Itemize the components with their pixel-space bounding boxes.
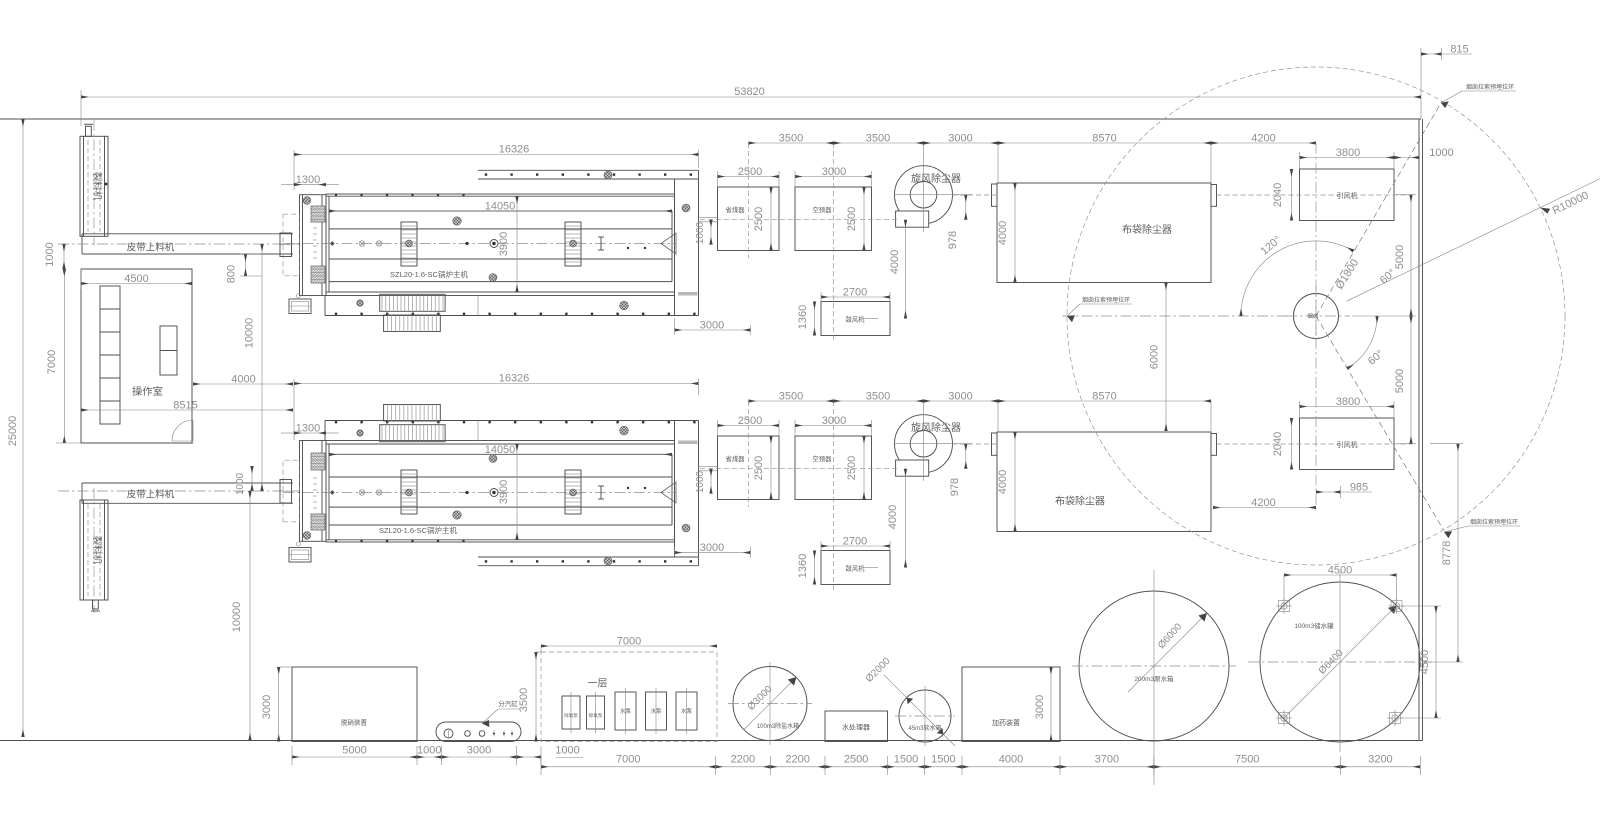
svg-text:4000: 4000 xyxy=(997,470,1009,494)
svg-text:SZL20-1.6-SC锅炉主机: SZL20-1.6-SC锅炉主机 xyxy=(379,525,457,535)
svg-text:7000: 7000 xyxy=(616,754,640,766)
svg-text:3700: 3700 xyxy=(1095,754,1119,766)
svg-text:皮带上料机: 皮带上料机 xyxy=(127,242,175,254)
svg-text:2500: 2500 xyxy=(846,207,858,231)
svg-text:水泵: 水泵 xyxy=(650,707,662,715)
svg-text:脱硝装置: 脱硝装置 xyxy=(341,718,368,727)
svg-text:2500: 2500 xyxy=(844,754,868,766)
svg-text:3000: 3000 xyxy=(700,542,724,554)
svg-text:鼓风机: 鼓风机 xyxy=(846,564,866,573)
svg-text:4200: 4200 xyxy=(1251,497,1275,509)
svg-text:4200: 4200 xyxy=(1251,133,1275,145)
svg-text:3500: 3500 xyxy=(779,133,803,145)
svg-text:200m3原水箱: 200m3原水箱 xyxy=(1134,674,1174,683)
svg-text:985: 985 xyxy=(1350,482,1368,494)
svg-text:除氧泵: 除氧泵 xyxy=(564,712,578,719)
svg-text:加药装置: 加药装置 xyxy=(992,718,1020,727)
svg-text:100m3除盐水箱: 100m3除盐水箱 xyxy=(757,722,799,730)
svg-text:4500: 4500 xyxy=(1328,565,1352,577)
svg-text:分汽缸: 分汽缸 xyxy=(498,699,518,708)
svg-text:烟囱拉索预埋拉环: 烟囱拉索预埋拉环 xyxy=(1466,83,1514,91)
svg-text:空预器: 空预器 xyxy=(813,454,833,463)
svg-text:3500: 3500 xyxy=(866,391,890,403)
svg-text:3000: 3000 xyxy=(822,415,846,427)
svg-text:水处理器: 水处理器 xyxy=(842,723,870,732)
svg-text:水泵: 水泵 xyxy=(681,707,693,715)
svg-text:100m3储水罐: 100m3储水罐 xyxy=(1294,621,1334,630)
svg-text:800: 800 xyxy=(226,265,238,283)
svg-text:3000: 3000 xyxy=(948,133,972,145)
svg-text:4500: 4500 xyxy=(1419,650,1431,674)
svg-text:除氧泵: 除氧泵 xyxy=(589,712,603,719)
svg-text:7000: 7000 xyxy=(46,350,58,374)
svg-text:省煤器: 省煤器 xyxy=(726,205,746,214)
svg-text:8778: 8778 xyxy=(1441,541,1453,565)
svg-text:3200: 3200 xyxy=(1368,754,1392,766)
svg-text:1000: 1000 xyxy=(235,472,246,495)
svg-text:1300: 1300 xyxy=(296,423,320,435)
svg-text:4000: 4000 xyxy=(997,221,1009,245)
svg-text:省煤器: 省煤器 xyxy=(726,454,746,463)
svg-text:3900: 3900 xyxy=(498,232,510,256)
svg-text:空预器: 空预器 xyxy=(813,205,833,214)
svg-text:4000: 4000 xyxy=(999,754,1023,766)
svg-text:8515: 8515 xyxy=(173,400,197,412)
svg-text:2500: 2500 xyxy=(738,166,762,178)
svg-text:2500: 2500 xyxy=(738,415,762,427)
svg-text:7000: 7000 xyxy=(617,636,641,648)
svg-text:8570: 8570 xyxy=(1092,391,1116,403)
svg-text:2040: 2040 xyxy=(1272,183,1284,207)
svg-text:978: 978 xyxy=(949,478,961,496)
svg-text:1000: 1000 xyxy=(695,470,706,493)
svg-text:烟囱拉索预埋拉环: 烟囱拉索预埋拉环 xyxy=(1082,296,1130,304)
svg-text:3800: 3800 xyxy=(1336,147,1360,159)
svg-text:1000: 1000 xyxy=(44,242,56,266)
svg-text:1300: 1300 xyxy=(296,174,320,186)
svg-text:5000: 5000 xyxy=(1394,245,1406,269)
svg-text:2700: 2700 xyxy=(843,287,867,299)
svg-text:1000: 1000 xyxy=(695,221,706,244)
svg-text:4500: 4500 xyxy=(124,273,148,285)
svg-text:引风机: 引风机 xyxy=(1337,191,1358,200)
svg-text:4000: 4000 xyxy=(889,250,901,274)
svg-text:一层: 一层 xyxy=(588,678,608,690)
svg-text:2040: 2040 xyxy=(1272,432,1284,456)
svg-text:5000: 5000 xyxy=(1394,369,1406,393)
svg-text:裂料机: 裂料机 xyxy=(91,536,103,565)
svg-text:25000: 25000 xyxy=(7,416,19,447)
svg-text:14050: 14050 xyxy=(485,444,516,456)
svg-text:2500: 2500 xyxy=(753,207,765,231)
svg-text:布袋除尘器: 布袋除尘器 xyxy=(1055,495,1105,508)
svg-text:2500: 2500 xyxy=(846,456,858,480)
svg-text:1500: 1500 xyxy=(894,754,918,766)
svg-text:16326: 16326 xyxy=(499,373,530,385)
svg-text:3800: 3800 xyxy=(1336,396,1360,408)
svg-text:45m3软水箱: 45m3软水箱 xyxy=(908,724,941,732)
svg-text:6000: 6000 xyxy=(1149,345,1161,369)
svg-text:4000: 4000 xyxy=(887,505,899,529)
svg-text:3900: 3900 xyxy=(498,480,510,504)
svg-text:3500: 3500 xyxy=(866,133,890,145)
svg-text:3000: 3000 xyxy=(1034,695,1046,719)
svg-text:3500: 3500 xyxy=(779,391,803,403)
svg-text:10000: 10000 xyxy=(231,602,243,633)
svg-text:引风机: 引风机 xyxy=(1337,440,1358,449)
svg-text:3000: 3000 xyxy=(261,695,273,719)
svg-text:布袋除尘器: 布袋除尘器 xyxy=(1122,223,1172,236)
svg-text:2200: 2200 xyxy=(731,754,755,766)
svg-text:815: 815 xyxy=(1450,44,1468,56)
svg-text:鼓风机: 鼓风机 xyxy=(846,315,866,324)
svg-text:1360: 1360 xyxy=(797,554,809,578)
svg-text:2200: 2200 xyxy=(785,754,809,766)
svg-text:1000: 1000 xyxy=(417,745,441,757)
svg-text:2700: 2700 xyxy=(843,536,867,548)
svg-text:3000: 3000 xyxy=(822,166,846,178)
svg-text:14050: 14050 xyxy=(485,201,516,213)
svg-text:1360: 1360 xyxy=(797,305,809,329)
svg-text:3000: 3000 xyxy=(467,745,491,757)
svg-text:水泵: 水泵 xyxy=(620,707,632,715)
svg-text:3500: 3500 xyxy=(518,688,530,712)
svg-text:1500: 1500 xyxy=(931,754,955,766)
svg-text:2500: 2500 xyxy=(753,456,765,480)
svg-text:皮带上料机: 皮带上料机 xyxy=(127,489,175,501)
svg-text:8570: 8570 xyxy=(1092,133,1116,145)
svg-text:7500: 7500 xyxy=(1235,754,1259,766)
svg-text:烟囱拉索预埋拉环: 烟囱拉索预埋拉环 xyxy=(1470,518,1518,526)
svg-text:裂料机: 裂料机 xyxy=(91,172,103,201)
svg-text:16326: 16326 xyxy=(499,144,530,156)
svg-text:5000: 5000 xyxy=(342,745,366,757)
svg-text:4000: 4000 xyxy=(231,374,255,386)
svg-text:3000: 3000 xyxy=(948,391,972,403)
svg-text:10000: 10000 xyxy=(244,318,256,349)
svg-text:978: 978 xyxy=(947,231,959,249)
svg-text:操作室: 操作室 xyxy=(132,385,163,398)
svg-text:1000: 1000 xyxy=(555,745,579,757)
svg-text:SZL20-1.6-SC锅炉主机: SZL20-1.6-SC锅炉主机 xyxy=(390,269,468,279)
svg-text:旋风除尘器: 旋风除尘器 xyxy=(911,172,961,185)
svg-text:3000: 3000 xyxy=(700,320,724,332)
svg-text:53820: 53820 xyxy=(734,86,765,98)
svg-text:旋风除尘器: 旋风除尘器 xyxy=(911,421,961,434)
svg-text:1000: 1000 xyxy=(1429,147,1453,159)
svg-text:烟囱: 烟囱 xyxy=(1307,312,1318,320)
